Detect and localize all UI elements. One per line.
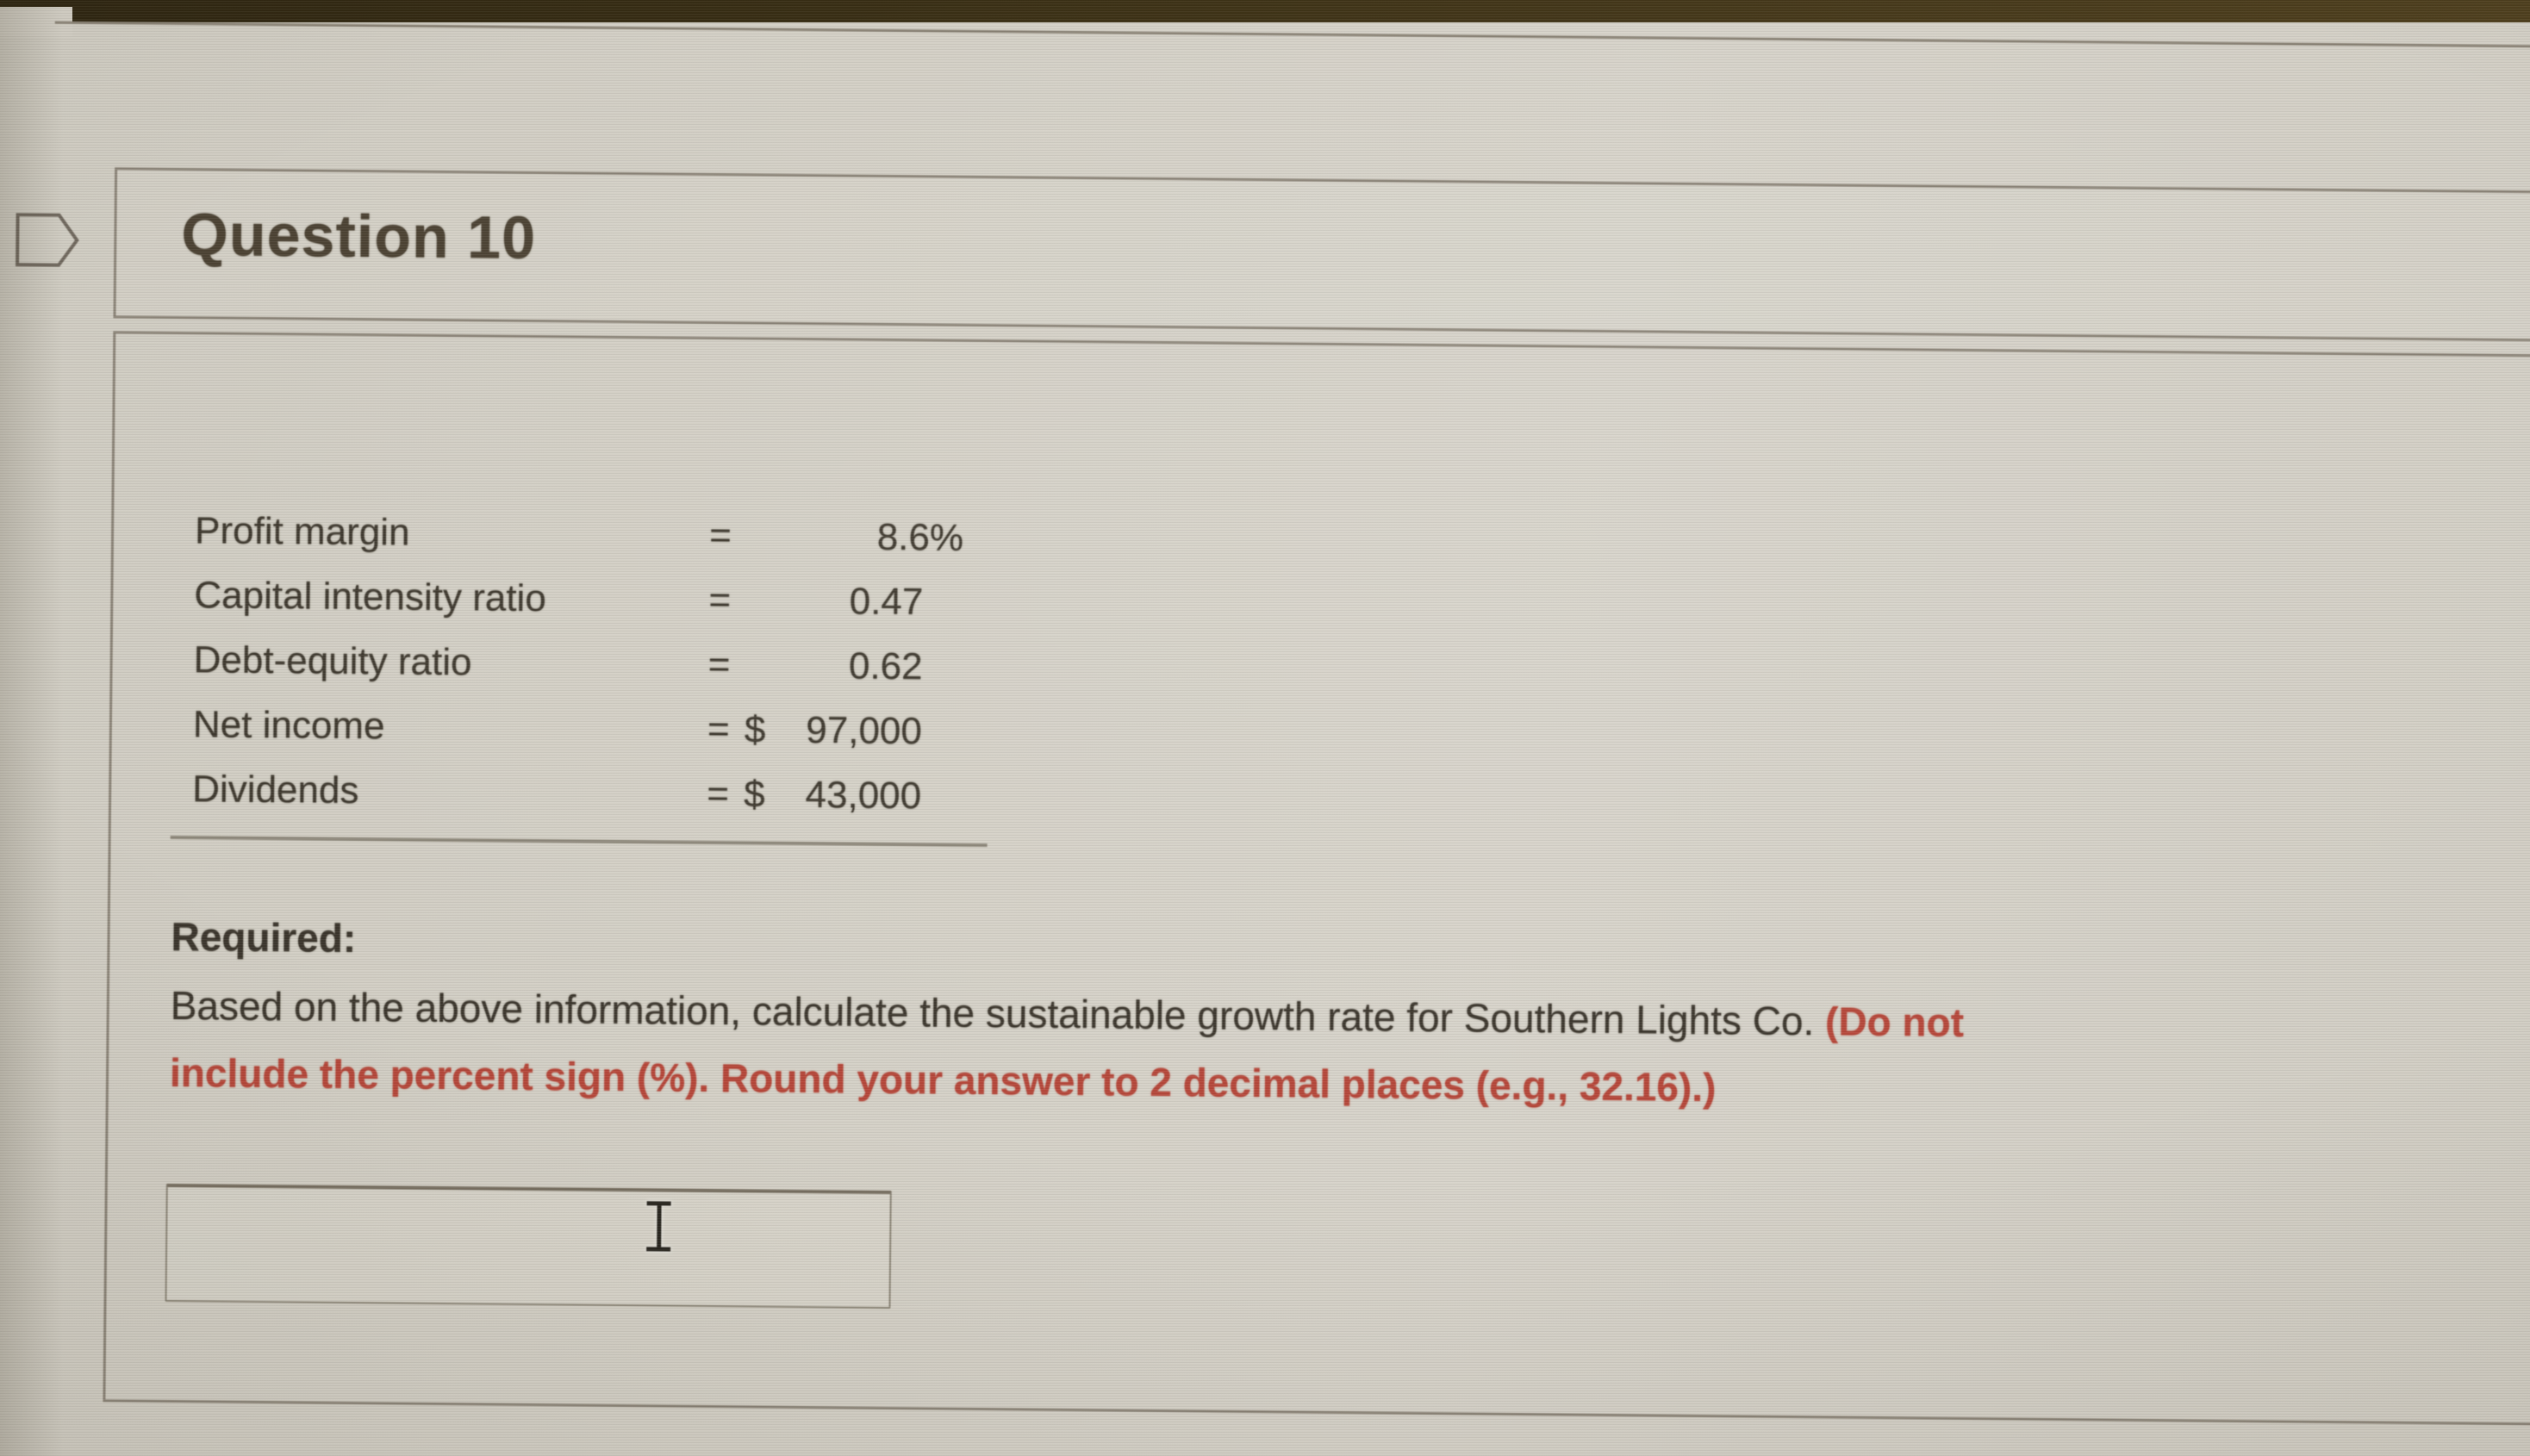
page-content: Question 10 Profit margin = 8.6% Capital… (0, 0, 2530, 1456)
table-row-equals: = (693, 697, 745, 762)
required-heading: Required: (171, 913, 356, 961)
table-row-equals: = (694, 568, 746, 633)
table-row-equals: = (695, 503, 747, 569)
currency-symbol: $ (745, 708, 766, 751)
value-amount: 0.47 (849, 580, 923, 624)
financial-data-table: Profit margin = 8.6% Capital intensity r… (192, 498, 925, 828)
value-amount: 0.62 (849, 644, 923, 688)
table-row-label: Capital intensity ratio (194, 563, 695, 632)
table-row-label: Debt-equity ratio (193, 627, 694, 697)
value-amount: 43,000 (805, 774, 921, 818)
question-body-panel: Profit margin = 8.6% Capital intensity r… (103, 331, 2530, 1426)
table-row-equals: = (692, 762, 745, 827)
table-row-label: Net income (193, 692, 694, 762)
page-top-divider (55, 22, 2530, 49)
question-flag-icon[interactable] (15, 212, 81, 268)
question-title: Question 10 (181, 202, 2530, 291)
table-bottom-rule (171, 836, 988, 847)
instruction-text: Based on the above information, calculat… (171, 983, 1826, 1043)
answer-input[interactable] (165, 1184, 892, 1309)
table-row-value: $97,000 (745, 697, 923, 763)
table-row-value: 0.47 (745, 568, 924, 634)
instruction-paragraph: Based on the above information, calculat… (170, 972, 2290, 1127)
table-row-equals: = (693, 632, 745, 698)
instruction-emphasis: include the percent sign (%). Round your… (170, 1050, 1717, 1110)
table-row-label: Profit margin (195, 498, 695, 568)
table-row-value: 0.62 (745, 632, 923, 699)
question-header-panel: Question 10 (113, 167, 2530, 342)
table-row-label: Dividends (192, 756, 693, 826)
screen-photo: Question 10 Profit margin = 8.6% Capital… (0, 0, 2530, 1456)
instruction-emphasis: (Do not (1825, 999, 1964, 1045)
value-amount: 8.6% (877, 515, 964, 559)
table-row-value: $43,000 (744, 762, 922, 828)
value-amount: 97,000 (806, 709, 922, 753)
table-row-value: 8.6% (746, 503, 925, 569)
i-beam-cursor (641, 1200, 676, 1256)
currency-symbol: $ (744, 773, 765, 816)
